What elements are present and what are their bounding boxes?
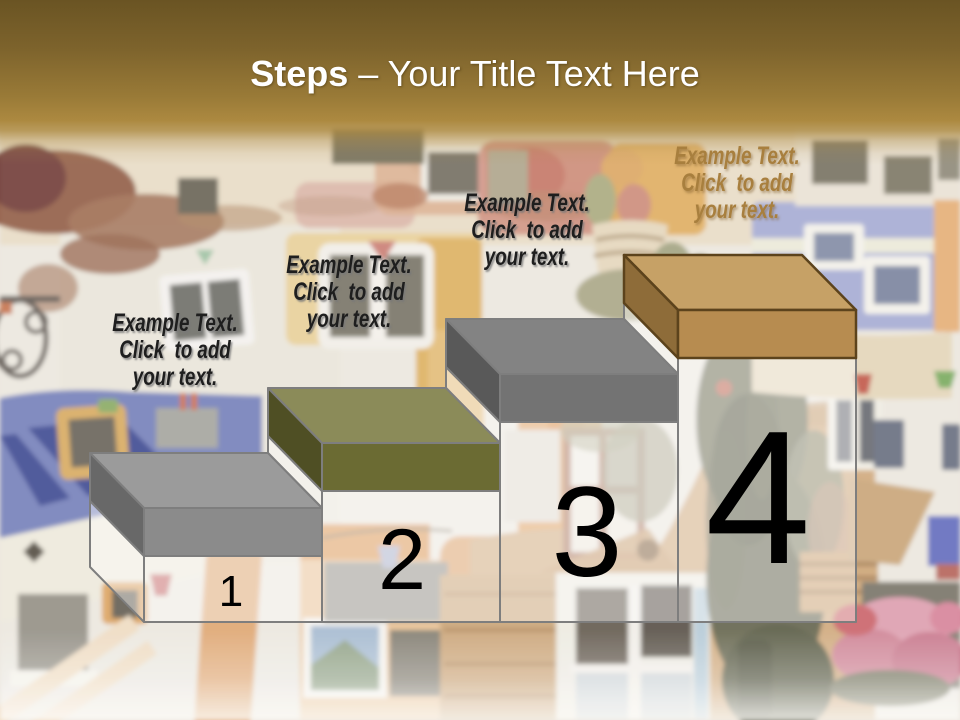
svg-text:4: 4 [705, 392, 811, 604]
svg-text:1: 1 [219, 567, 243, 616]
svg-text:3: 3 [551, 461, 622, 604]
svg-text:2: 2 [378, 512, 426, 608]
